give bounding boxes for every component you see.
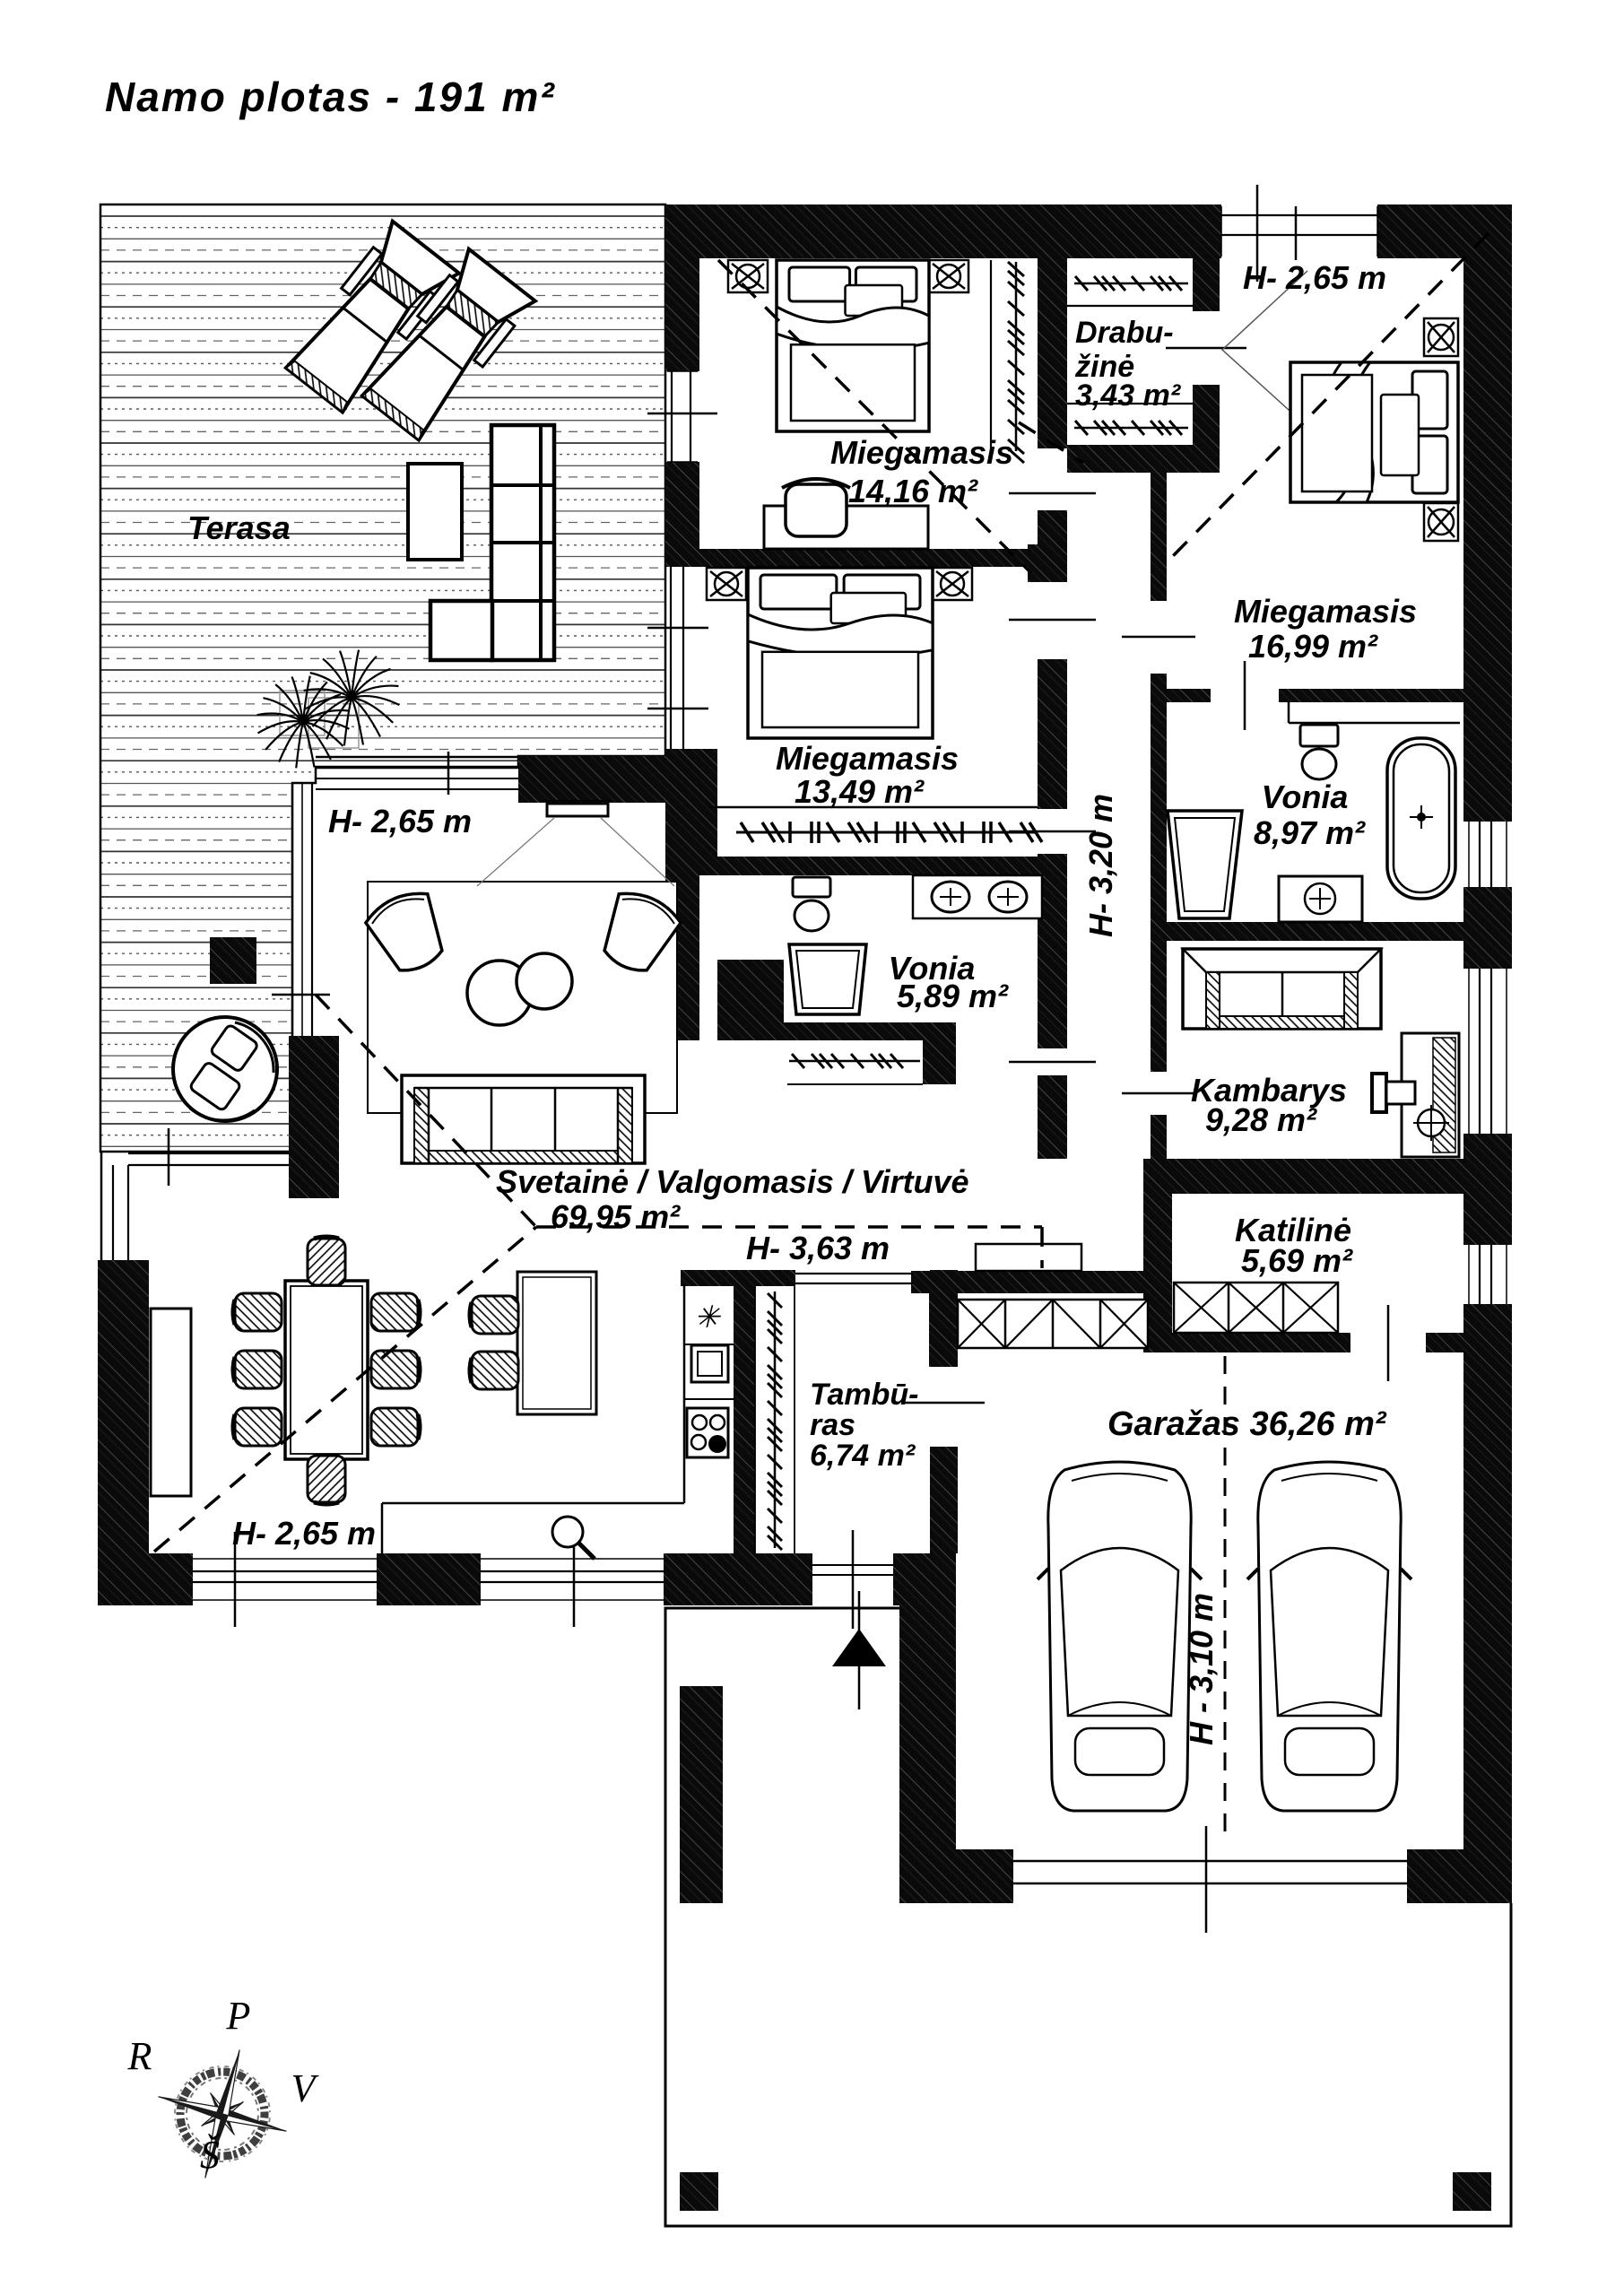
svg-text:Miegamasis: Miegamasis xyxy=(776,740,959,777)
svg-text:6,74 m²: 6,74 m² xyxy=(810,1439,916,1473)
svg-text:H - 3,10 m: H - 3,10 m xyxy=(1183,1593,1220,1745)
svg-text:13,49 m²: 13,49 m² xyxy=(795,773,925,810)
svg-text:P: P xyxy=(226,1994,251,2038)
svg-text:H- 2,65 m: H- 2,65 m xyxy=(328,803,472,839)
svg-text:5,69 m²: 5,69 m² xyxy=(1241,1242,1353,1279)
svg-text:H- 2,65 m: H- 2,65 m xyxy=(232,1515,376,1552)
svg-text:9,28 m²: 9,28 m² xyxy=(1205,1101,1317,1138)
svg-text:5,89 m²: 5,89 m² xyxy=(897,978,1009,1014)
svg-text:H- 3,20 m: H- 3,20 m xyxy=(1082,794,1119,937)
svg-text:H- 2,65 m: H- 2,65 m xyxy=(1243,259,1386,296)
svg-text:69,95 m²: 69,95 m² xyxy=(551,1198,681,1235)
svg-text:8,97 m²: 8,97 m² xyxy=(1254,814,1366,851)
svg-text:Svetainė / Valgomasis / Virtuv: Svetainė / Valgomasis / Virtuvė xyxy=(496,1163,969,1200)
svg-text:Garažas 36,26 m²: Garažas 36,26 m² xyxy=(1107,1405,1387,1443)
svg-text:Drabu-: Drabu- xyxy=(1075,316,1174,350)
svg-text:ras: ras xyxy=(810,1408,855,1442)
svg-text:R: R xyxy=(127,2034,152,2078)
svg-text:✳: ✳ xyxy=(694,1300,721,1335)
svg-text:Miegamasis: Miegamasis xyxy=(830,434,1013,471)
svg-text:3,43 m²: 3,43 m² xyxy=(1075,378,1182,413)
svg-text:16,99 m²: 16,99 m² xyxy=(1248,628,1378,665)
svg-text:H- 3,63 m: H- 3,63 m xyxy=(746,1230,890,1266)
svg-text:Š: Š xyxy=(200,2133,220,2177)
svg-text:14,16 m²: 14,16 m² xyxy=(848,473,978,509)
svg-text:Namo plotas - 191 m²: Namo plotas - 191 m² xyxy=(105,74,556,120)
svg-text:Vonia: Vonia xyxy=(1262,778,1349,815)
svg-text:Miegamasis: Miegamasis xyxy=(1234,593,1417,630)
svg-text:Terasa: Terasa xyxy=(187,509,291,546)
svg-text:Tambū-: Tambū- xyxy=(810,1378,919,1412)
